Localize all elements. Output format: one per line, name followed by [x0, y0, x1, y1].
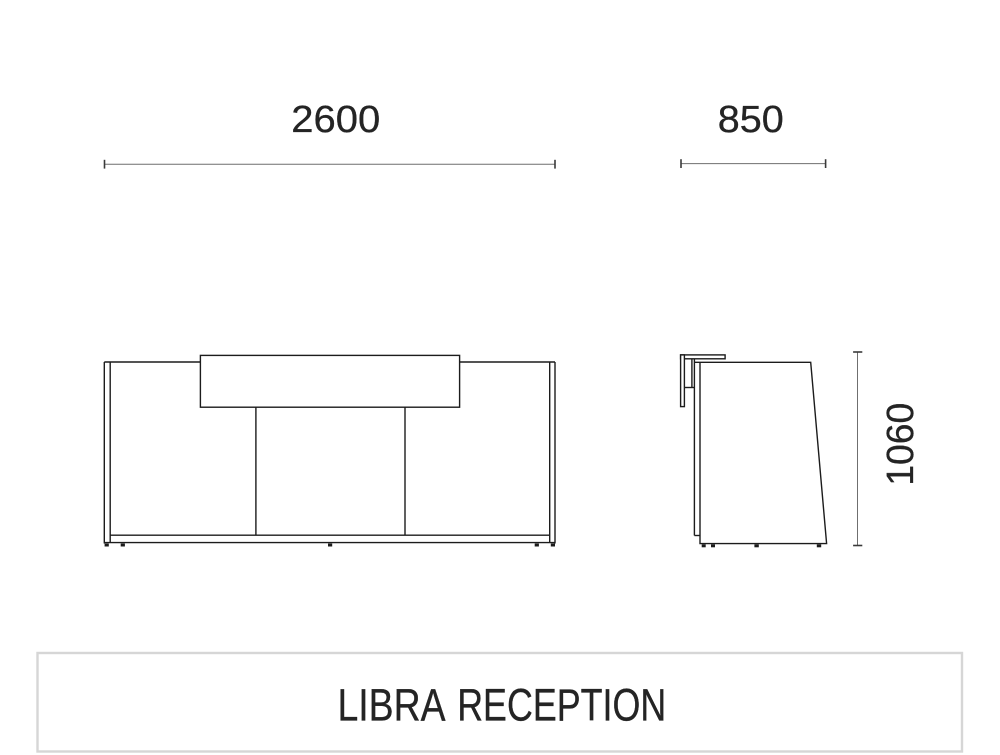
svg-text:1060: 1060	[879, 403, 922, 486]
svg-text:2600: 2600	[291, 98, 380, 141]
svg-text:850: 850	[718, 98, 784, 141]
svg-text:RECEPTION: RECEPTION	[457, 680, 666, 731]
svg-text:LIBRA: LIBRA	[338, 680, 446, 731]
